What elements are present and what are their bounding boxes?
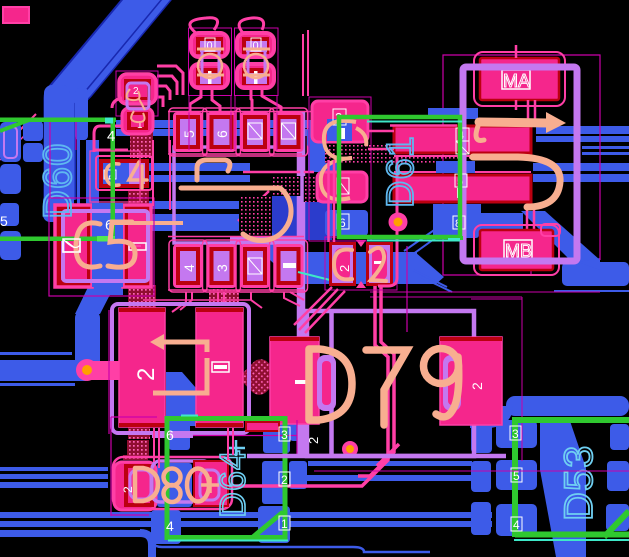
svg-text:2: 2 — [306, 437, 321, 444]
svg-text:5: 5 — [0, 213, 8, 229]
svg-text:D60: D60 — [36, 143, 80, 219]
svg-text:4: 4 — [513, 518, 520, 532]
svg-text:6: 6 — [214, 130, 230, 138]
svg-text:3: 3 — [281, 428, 288, 442]
svg-text:3: 3 — [512, 427, 519, 441]
svg-text:6: 6 — [166, 427, 174, 443]
svg-text:2: 2 — [469, 382, 485, 390]
svg-text:MA: MA — [503, 71, 530, 91]
svg-text:3: 3 — [214, 264, 230, 272]
svg-text:2: 2 — [281, 473, 288, 487]
svg-text:2: 2 — [133, 368, 160, 381]
svg-text:D61: D61 — [380, 135, 422, 208]
svg-text:D64: D64 — [212, 449, 253, 518]
svg-text:4: 4 — [107, 128, 115, 145]
svg-text:1: 1 — [281, 517, 288, 531]
svg-text:D53: D53 — [557, 445, 601, 521]
svg-text:4: 4 — [181, 264, 197, 272]
svg-text:2: 2 — [337, 265, 352, 272]
svg-text:4: 4 — [166, 518, 174, 534]
